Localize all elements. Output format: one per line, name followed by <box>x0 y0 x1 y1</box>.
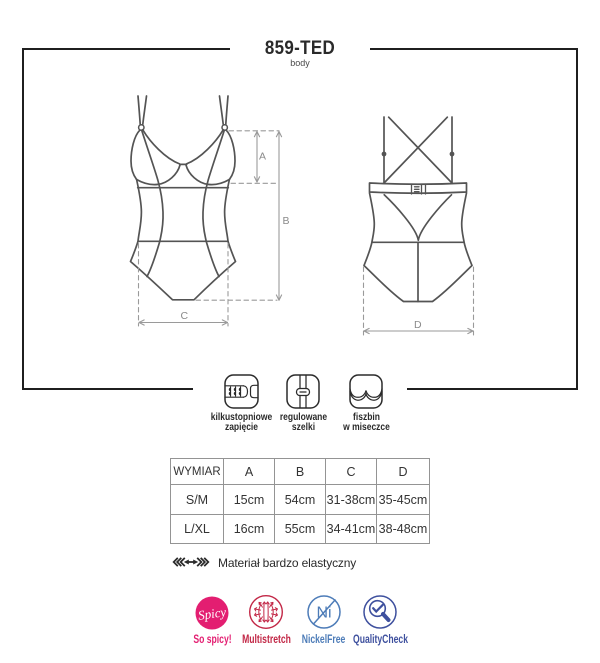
svg-text:D: D <box>414 319 422 331</box>
svg-text:A: A <box>259 151 266 163</box>
svg-text:C: C <box>181 310 189 322</box>
svg-text:B: B <box>283 215 290 227</box>
